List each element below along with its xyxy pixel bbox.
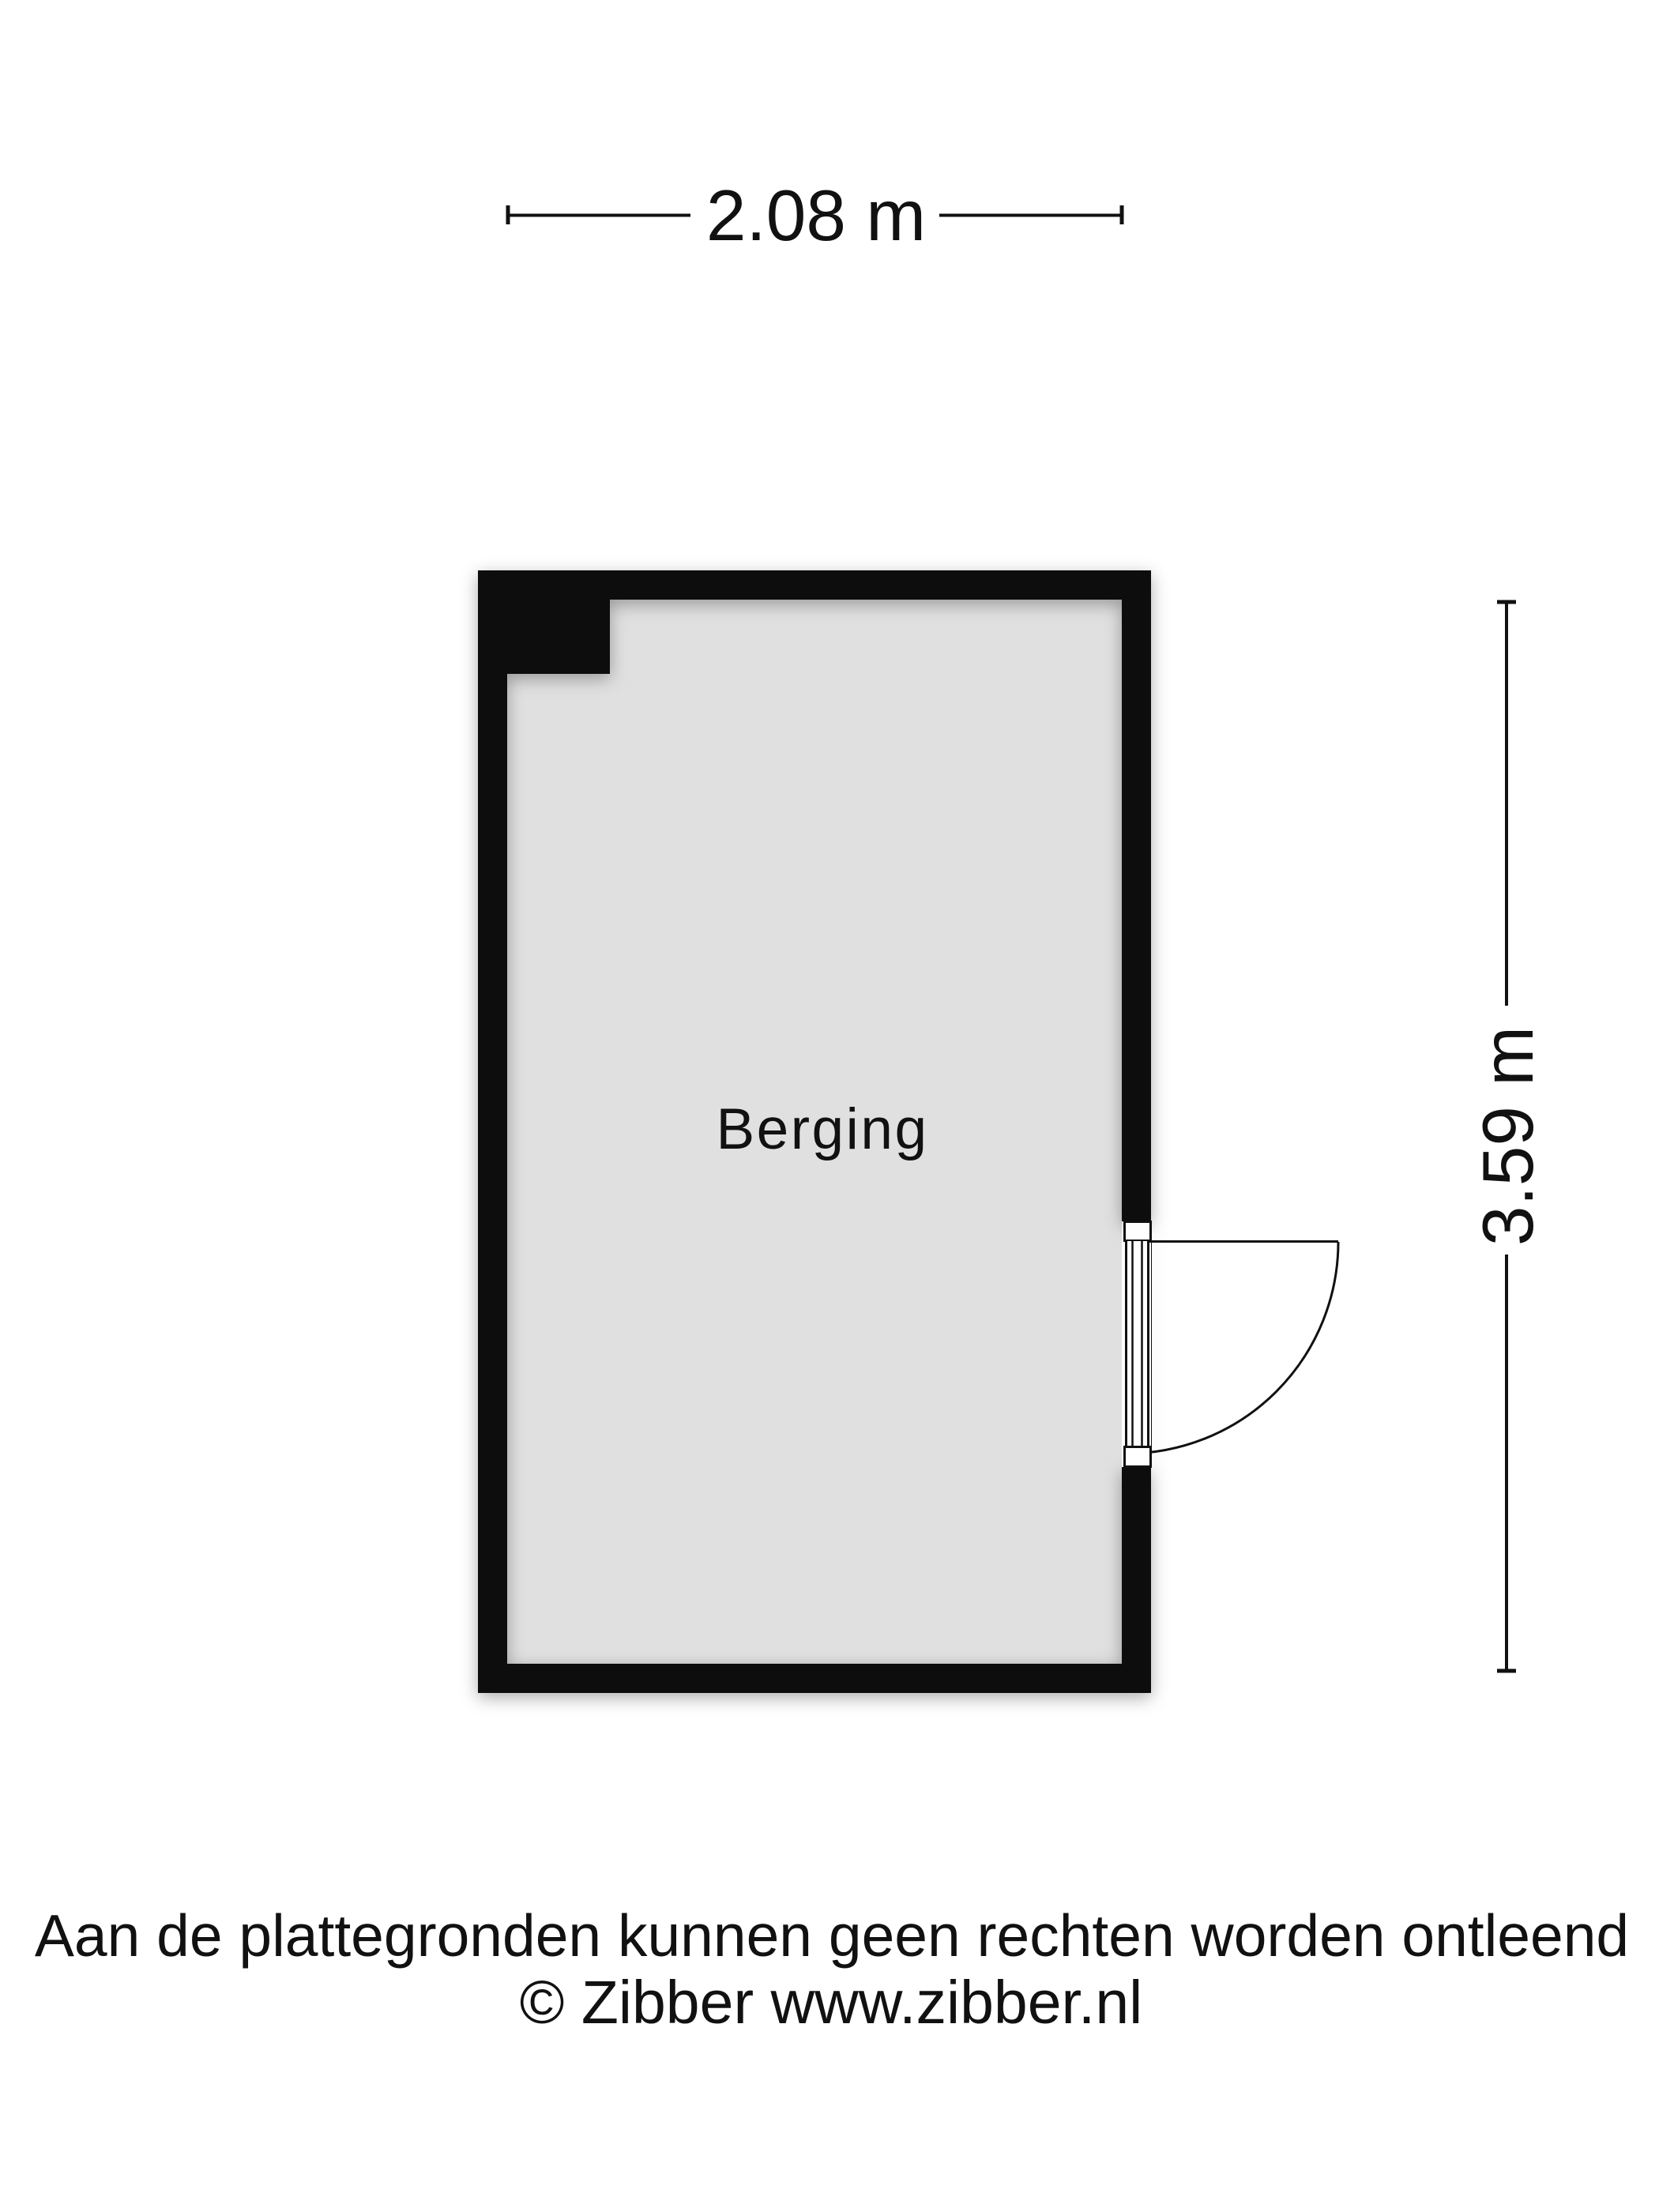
svg-text:Berging: Berging <box>716 1097 928 1161</box>
svg-text:Aan de plattegronden kunnen ge: Aan de plattegronden kunnen geen rechten… <box>35 1902 1629 1969</box>
svg-text:3.59 m: 3.59 m <box>1469 1026 1548 1246</box>
svg-text:2.08 m: 2.08 m <box>706 176 926 256</box>
svg-text:© Zibber www.zibber.nl: © Zibber www.zibber.nl <box>520 1969 1143 2037</box>
